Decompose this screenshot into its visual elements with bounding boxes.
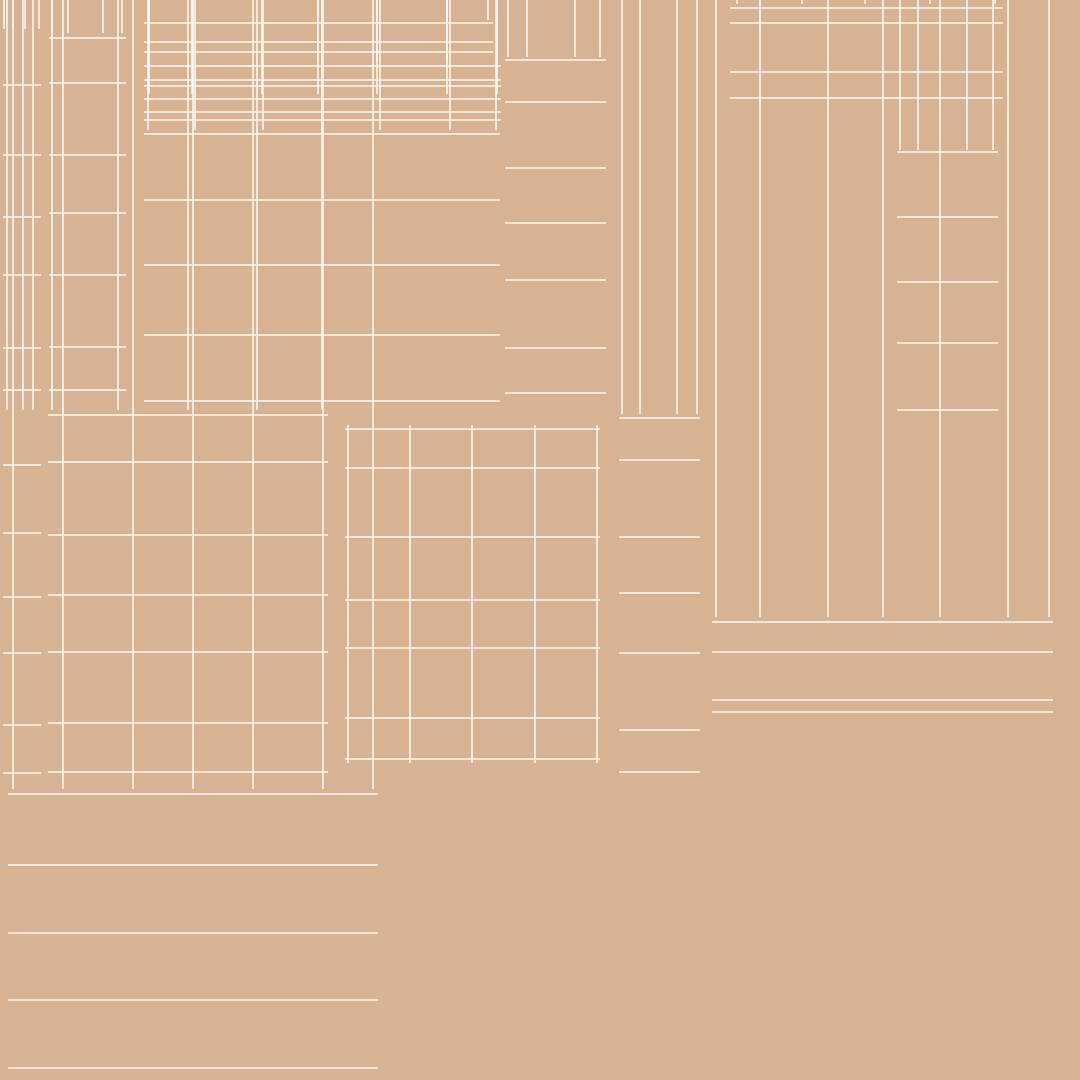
uv-island-bar-mid-right [712, 0, 1053, 712]
uv-island-strip-top-left-b [49, 0, 126, 390]
uv-island-bar-top-right [730, 0, 1003, 98]
uv-island-square-bottom-left [8, 0, 378, 1068]
uv-island-rect-tall-center [505, 0, 606, 393]
uv-island-square-mid-left [48, 0, 328, 772]
uv-island-frame-mid-center [345, 425, 600, 763]
uv-island-strip-mid-left [3, 0, 41, 773]
uv-island-strip-top-left-a [3, 0, 41, 390]
uv-atlas [0, 0, 1080, 1080]
uv-island-strip-mid-center [619, 0, 700, 772]
uv-atlas-svg [0, 0, 1080, 1080]
uv-island-rect-right-upper [897, 0, 998, 410]
